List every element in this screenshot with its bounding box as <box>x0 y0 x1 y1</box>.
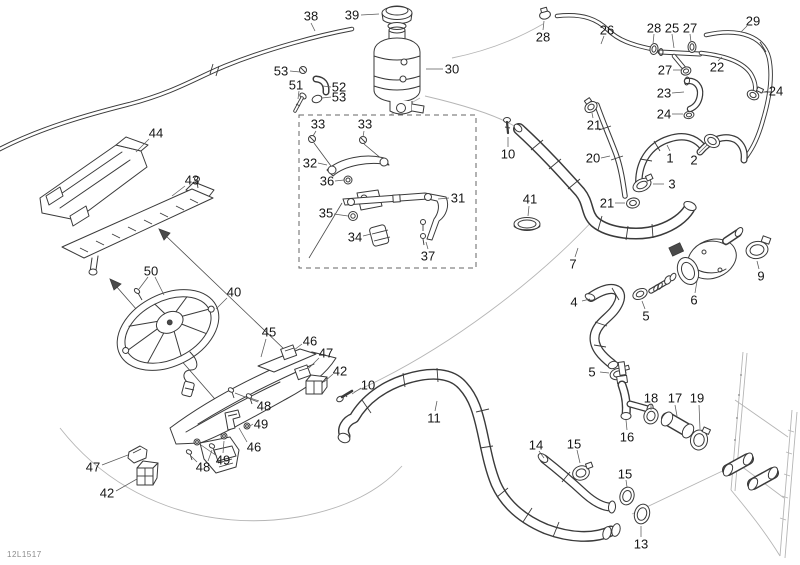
part-label-28: 28 <box>536 30 550 45</box>
reservoir-tank-30 <box>374 27 424 114</box>
part-label-6: 6 <box>690 293 697 308</box>
clamp-15b <box>618 485 636 506</box>
part-label-14: 14 <box>529 438 543 453</box>
leader-line-11 <box>435 401 437 411</box>
figure-code: 12L1517 <box>7 550 42 559</box>
cooling-system-diagram: 3839305351525328262825272927222324242120… <box>0 0 800 565</box>
part-label-49: 49 <box>216 453 230 468</box>
part-label-21: 21 <box>600 196 614 211</box>
part-label-33: 33 <box>311 117 325 132</box>
parts-diagram-page: 3839305351525328262825272927222324242120… <box>0 0 800 565</box>
part-label-48: 48 <box>196 460 210 475</box>
leader-line-16 <box>626 420 627 430</box>
part-label-3: 3 <box>668 177 675 192</box>
part-label-24: 24 <box>657 107 671 122</box>
air-duct-44 <box>40 137 148 226</box>
leader-line-32 <box>318 163 327 165</box>
part-label-46: 46 <box>303 334 317 349</box>
part-label-53: 53 <box>332 90 346 105</box>
part-label-36: 36 <box>320 174 334 189</box>
part-number-labels: 3839305351525328262825272927222324242120… <box>86 8 783 552</box>
leader-line-19 <box>699 405 700 429</box>
part-label-53: 53 <box>274 64 288 79</box>
leader-line-41 <box>528 206 529 216</box>
elbow-23 <box>684 77 700 109</box>
part-label-26: 26 <box>600 23 614 38</box>
frame-panel <box>731 352 797 558</box>
leader-line-5 <box>600 372 609 373</box>
leader-line-20 <box>601 156 610 158</box>
leader-line-45 <box>261 339 266 357</box>
leader-line-25 <box>672 34 674 48</box>
part-label-31: 31 <box>451 191 465 206</box>
part-label-40: 40 <box>227 285 241 300</box>
elbow-2 <box>700 132 744 160</box>
hose-stub-b <box>746 465 779 491</box>
clamp-24b <box>683 111 694 120</box>
part-label-24: 24 <box>769 84 783 99</box>
mount-42-left <box>137 461 158 485</box>
part-label-7: 7 <box>569 257 576 272</box>
clamp-28b <box>649 43 659 55</box>
leader-line-42 <box>116 479 137 491</box>
part-label-39: 39 <box>345 8 359 23</box>
part-label-17: 17 <box>668 391 682 406</box>
part-label-27: 27 <box>658 63 672 78</box>
leader-line-50 <box>139 277 148 289</box>
leader-line-39 <box>361 14 379 15</box>
leader-line-53 <box>322 97 331 98</box>
part-label-21: 21 <box>587 118 601 133</box>
bleed-screw-10-lower <box>336 391 352 403</box>
part-label-29: 29 <box>746 14 760 29</box>
part-label-27: 27 <box>683 21 697 36</box>
part-label-22: 22 <box>710 60 724 75</box>
washer-5a <box>631 286 649 301</box>
leader-line-23 <box>672 92 684 93</box>
leader-line-35 <box>334 214 348 216</box>
clamp-27a <box>688 42 696 53</box>
part-label-46: 46 <box>247 440 261 455</box>
part-label-33: 33 <box>358 117 372 132</box>
part-label-10: 10 <box>501 147 515 162</box>
mount-42-right <box>306 375 327 394</box>
leader-line-17 <box>675 405 677 416</box>
leader-line-53 <box>290 71 300 72</box>
part-label-11: 11 <box>427 411 441 426</box>
part-label-28: 28 <box>647 21 661 36</box>
part-label-4: 4 <box>570 295 577 310</box>
part-label-34: 34 <box>348 230 362 245</box>
part-label-23: 23 <box>657 86 671 101</box>
part-label-25: 25 <box>665 21 679 36</box>
part-label-49: 49 <box>254 417 268 432</box>
part-label-5: 5 <box>588 365 595 380</box>
leader-line-15 <box>577 450 580 463</box>
part-label-45: 45 <box>262 325 276 340</box>
part-label-5: 5 <box>642 309 649 324</box>
leader-line-40 <box>216 298 227 309</box>
part-label-50: 50 <box>144 264 158 279</box>
clamp-28a <box>539 7 552 20</box>
part-label-32: 32 <box>303 156 317 171</box>
part-label-9: 9 <box>757 269 764 284</box>
part-label-30: 30 <box>445 62 459 77</box>
part-label-38: 38 <box>304 9 318 24</box>
part-label-15: 15 <box>567 437 581 452</box>
part-label-1: 1 <box>666 151 673 166</box>
leader-line-34 <box>363 234 371 236</box>
part-label-16: 16 <box>620 430 634 445</box>
part-label-48: 48 <box>257 399 271 414</box>
cooling-fan-40 <box>104 273 233 397</box>
hose-14 <box>537 452 616 513</box>
leader-line-50 <box>155 277 164 295</box>
part-label-44: 44 <box>149 126 163 141</box>
leader-line-49 <box>250 424 253 426</box>
part-label-42: 42 <box>333 364 347 379</box>
part-label-47: 47 <box>319 346 333 361</box>
leader-line-36 <box>335 180 344 181</box>
clamp-9 <box>745 236 771 260</box>
hose-11 <box>337 368 622 540</box>
part-label-19: 19 <box>690 391 704 406</box>
part-label-2: 2 <box>690 153 697 168</box>
bracket-inset-box <box>299 115 476 268</box>
part-label-47: 47 <box>86 460 100 475</box>
barbed-fitting <box>651 272 677 292</box>
part-label-15: 15 <box>618 467 632 482</box>
connector-17 <box>659 410 696 440</box>
part-label-42: 42 <box>100 486 114 501</box>
leader-line-33 <box>313 131 316 136</box>
part-label-18: 18 <box>644 391 658 406</box>
leader-line-10 <box>352 388 361 394</box>
part-label-43: 43 <box>185 173 199 188</box>
part-label-35: 35 <box>319 206 333 221</box>
clamp-21b <box>626 197 641 209</box>
part-label-37: 37 <box>421 249 435 264</box>
bleed-screw-10-upper <box>504 118 511 134</box>
clip-47-left <box>128 446 147 463</box>
leader-line-28 <box>653 34 654 44</box>
hose-4 <box>584 288 620 370</box>
reservoir-cap-39 <box>382 6 412 30</box>
part-label-10: 10 <box>361 378 375 393</box>
leader-line-47 <box>102 455 128 465</box>
thermostat-housing-6 <box>669 226 744 288</box>
part-label-41: 41 <box>523 192 537 207</box>
part-label-20: 20 <box>586 151 600 166</box>
part-label-13: 13 <box>634 537 648 552</box>
leader-line-38 <box>311 23 315 31</box>
arrow-icon <box>110 279 121 290</box>
part-label-51: 51 <box>289 78 303 93</box>
grommet-41 <box>514 218 540 231</box>
